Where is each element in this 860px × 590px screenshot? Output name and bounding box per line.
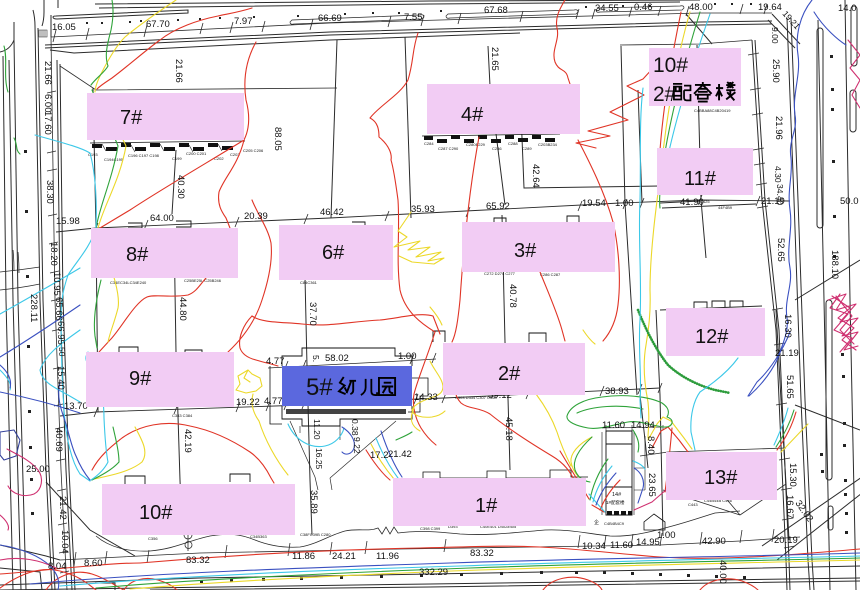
svg-text:C443: C443 bbox=[688, 502, 698, 507]
svg-text:11#: 11# bbox=[684, 168, 717, 190]
svg-text:188.10: 188.10 bbox=[829, 250, 840, 279]
svg-text:10#: 10# bbox=[139, 502, 173, 524]
svg-text:65.92: 65.92 bbox=[486, 201, 510, 212]
svg-text:C199: C199 bbox=[172, 156, 182, 161]
svg-text:C284: C284 bbox=[424, 141, 434, 146]
svg-text:44F4B9: 44F4B9 bbox=[718, 205, 733, 210]
svg-text:11.96: 11.96 bbox=[376, 551, 399, 562]
svg-text:21.65: 21.65 bbox=[489, 47, 500, 71]
svg-text:9.00: 9.00 bbox=[770, 27, 780, 44]
svg-text:C286 C287: C286 C287 bbox=[540, 272, 561, 277]
svg-text:7.97: 7.97 bbox=[234, 16, 253, 27]
svg-text:企: 企 bbox=[594, 519, 599, 526]
svg-text:3#: 3# bbox=[514, 240, 537, 262]
svg-text:21.66: 21.66 bbox=[173, 59, 184, 83]
svg-text:C288: C288 bbox=[508, 141, 518, 146]
svg-text:11.60: 11.60 bbox=[602, 420, 625, 431]
svg-text:C194C195: C194C195 bbox=[104, 157, 124, 162]
svg-text:14.94: 14.94 bbox=[631, 420, 655, 431]
svg-text:4.30: 4.30 bbox=[773, 166, 783, 183]
svg-text:1.00: 1.00 bbox=[657, 530, 676, 541]
svg-text:66.95: 66.95 bbox=[55, 321, 66, 345]
svg-text:C4B4B4C9: C4B4B4C9 bbox=[604, 521, 625, 526]
svg-text:14.0: 14.0 bbox=[838, 3, 857, 14]
svg-text:34.55: 34.55 bbox=[595, 3, 619, 14]
svg-text:16.05: 16.05 bbox=[52, 22, 76, 33]
svg-text:C383 C384: C383 C384 bbox=[172, 413, 193, 418]
svg-text:4#: 4# bbox=[461, 104, 484, 126]
svg-text:20.19: 20.19 bbox=[774, 535, 798, 546]
svg-text:C38FC39B C280: C38FC39B C280 bbox=[300, 532, 331, 537]
svg-text:51.65: 51.65 bbox=[784, 375, 795, 399]
svg-text:10.34: 10.34 bbox=[582, 541, 606, 552]
svg-text:228.11: 228.11 bbox=[28, 294, 39, 322]
svg-text:18.20: 18.20 bbox=[48, 242, 59, 266]
svg-text:20.39: 20.39 bbox=[244, 211, 268, 222]
svg-text:332.29: 332.29 bbox=[419, 567, 448, 578]
svg-text:11.20: 11.20 bbox=[312, 419, 322, 440]
svg-text:35.89: 35.89 bbox=[308, 490, 319, 514]
svg-text:16.67: 16.67 bbox=[784, 495, 795, 519]
svg-text:C196 C197 C198: C196 C197 C198 bbox=[128, 153, 160, 158]
svg-text:2#: 2# bbox=[498, 363, 521, 385]
svg-text:8.60: 8.60 bbox=[84, 558, 103, 569]
svg-text:23.65: 23.65 bbox=[646, 473, 657, 497]
svg-text:34.40: 34.40 bbox=[775, 184, 785, 206]
svg-text:17.2: 17.2 bbox=[370, 450, 389, 461]
svg-text:50.0: 50.0 bbox=[840, 196, 859, 207]
svg-text:1#: 1# bbox=[475, 495, 498, 517]
svg-text:17.60: 17.60 bbox=[42, 111, 53, 135]
svg-text:C286: C286 bbox=[492, 146, 502, 151]
svg-text:38.30: 38.30 bbox=[44, 180, 55, 204]
svg-text:10#: 10# bbox=[653, 54, 688, 77]
svg-text:38.93: 38.93 bbox=[605, 386, 629, 397]
svg-text:0.38: 0.38 bbox=[350, 419, 360, 436]
svg-text:41.90: 41.90 bbox=[680, 197, 704, 208]
svg-text:6.00: 6.00 bbox=[42, 94, 53, 113]
svg-text:7.55: 7.55 bbox=[404, 12, 423, 23]
svg-text:40.78: 40.78 bbox=[507, 284, 518, 308]
svg-text:40.30: 40.30 bbox=[175, 175, 186, 199]
svg-text:11.60: 11.60 bbox=[610, 540, 633, 551]
svg-text:14.33: 14.33 bbox=[414, 392, 438, 403]
svg-text:C280E229: C280E229 bbox=[466, 142, 486, 147]
svg-text:67.68: 67.68 bbox=[484, 5, 508, 16]
svg-text:24.21: 24.21 bbox=[332, 551, 356, 562]
svg-text:21.66: 21.66 bbox=[42, 61, 53, 85]
svg-text:25.00: 25.00 bbox=[26, 464, 50, 475]
svg-text:15.40: 15.40 bbox=[55, 366, 66, 390]
svg-text:12#: 12# bbox=[695, 326, 729, 348]
svg-text:C84C361: C84C361 bbox=[300, 280, 318, 285]
svg-text:42.90: 42.90 bbox=[702, 536, 726, 547]
svg-text:C287 C290: C287 C290 bbox=[438, 146, 459, 151]
svg-text:50: 50 bbox=[57, 347, 67, 357]
svg-text:11.86: 11.86 bbox=[292, 551, 315, 562]
svg-text:8.40: 8.40 bbox=[645, 436, 656, 455]
svg-text:9#: 9# bbox=[129, 368, 152, 390]
svg-text:1#配套楼: 1#配套楼 bbox=[606, 499, 625, 506]
svg-text:45.18: 45.18 bbox=[503, 417, 514, 441]
svg-text:21.42: 21.42 bbox=[388, 449, 412, 460]
svg-text:66.69: 66.69 bbox=[318, 13, 342, 24]
svg-text:C200 C201: C200 C201 bbox=[186, 151, 207, 156]
svg-text:10.04: 10.04 bbox=[59, 530, 70, 554]
svg-text:40.00: 40.00 bbox=[717, 560, 728, 584]
svg-text:16.30: 16.30 bbox=[782, 314, 793, 338]
svg-text:19.22: 19.22 bbox=[236, 397, 260, 408]
svg-text:19.54: 19.54 bbox=[582, 198, 606, 209]
svg-text:88.05: 88.05 bbox=[272, 127, 283, 151]
svg-text:21.96: 21.96 bbox=[773, 116, 784, 140]
svg-text:8.04: 8.04 bbox=[48, 561, 67, 572]
svg-text:C398 C399: C398 C399 bbox=[420, 526, 441, 531]
svg-text:83.32: 83.32 bbox=[470, 548, 494, 559]
svg-text:C4BBA88C4B20419: C4BBA88C4B20419 bbox=[694, 108, 731, 113]
svg-text:25.90: 25.90 bbox=[770, 59, 781, 83]
svg-text:15.98: 15.98 bbox=[56, 216, 80, 227]
svg-text:7#: 7# bbox=[120, 107, 143, 129]
svg-text:6#: 6# bbox=[322, 242, 345, 264]
svg-text:35.93: 35.93 bbox=[411, 204, 435, 215]
svg-text:83.32: 83.32 bbox=[186, 555, 210, 566]
svg-text:4.77: 4.77 bbox=[266, 356, 285, 367]
svg-text:42.19: 42.19 bbox=[182, 429, 193, 453]
svg-text:44.80: 44.80 bbox=[177, 297, 188, 321]
svg-text:9.22: 9.22 bbox=[352, 437, 362, 454]
svg-text:13#: 13# bbox=[704, 467, 738, 489]
svg-text:1.00: 1.00 bbox=[615, 198, 634, 209]
svg-text:1.00: 1.00 bbox=[398, 351, 417, 362]
svg-text:16.25: 16.25 bbox=[314, 448, 324, 470]
svg-text:C356: C356 bbox=[148, 536, 158, 541]
svg-text:42.64: 42.64 bbox=[530, 164, 541, 188]
svg-text:C203B234: C203B234 bbox=[538, 142, 558, 147]
svg-text:21.42: 21.42 bbox=[57, 496, 68, 520]
svg-text:10.95: 10.95 bbox=[51, 272, 62, 296]
svg-text:21.19: 21.19 bbox=[775, 348, 799, 359]
svg-text:5#: 5# bbox=[306, 374, 333, 401]
svg-text:15.30: 15.30 bbox=[787, 463, 798, 487]
svg-text:8#: 8# bbox=[126, 244, 149, 266]
svg-text:67.70: 67.70 bbox=[146, 19, 170, 30]
svg-text:C205 C206: C205 C206 bbox=[243, 148, 264, 153]
svg-text:13.70: 13.70 bbox=[64, 401, 88, 412]
svg-text:0.46: 0.46 bbox=[634, 2, 653, 13]
svg-text:5.: 5. bbox=[311, 355, 321, 362]
svg-text:14#: 14# bbox=[612, 492, 622, 498]
svg-text:46.42: 46.42 bbox=[320, 207, 344, 218]
svg-text:C289: C289 bbox=[522, 146, 532, 151]
svg-text:4.77: 4.77 bbox=[264, 396, 283, 407]
svg-text:48.00: 48.00 bbox=[689, 2, 713, 13]
svg-text:58.02: 58.02 bbox=[325, 353, 349, 364]
svg-text:65.66: 65.66 bbox=[53, 297, 64, 321]
svg-text:37.70: 37.70 bbox=[307, 302, 318, 326]
svg-text:64.00: 64.00 bbox=[150, 213, 174, 224]
svg-text:52.65: 52.65 bbox=[775, 238, 786, 262]
svg-text:40.69: 40.69 bbox=[53, 428, 64, 452]
svg-text:19.64: 19.64 bbox=[758, 2, 782, 13]
